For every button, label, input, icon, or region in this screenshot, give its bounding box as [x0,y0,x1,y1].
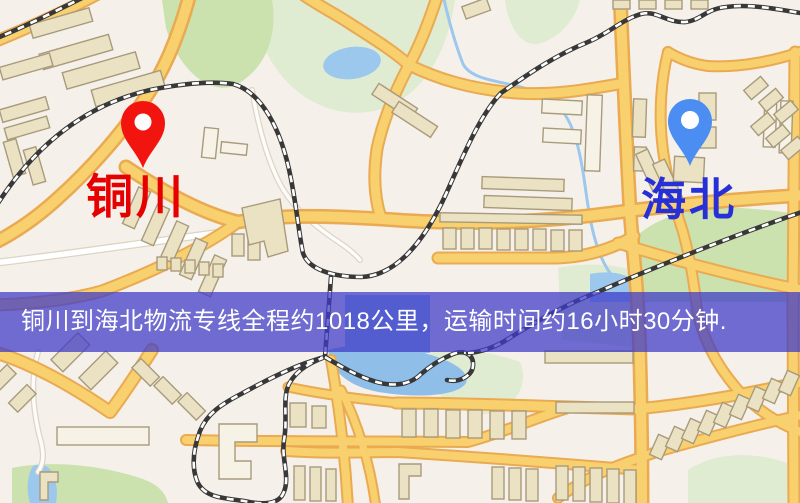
route-info-banner: 铜川到海北物流专线全程约1018公里，运输时间约16小时30分钟. [0,292,800,352]
destination-pin-icon[interactable] [666,98,714,168]
destination-city-label: 海北 [630,176,748,223]
origin-pin-icon[interactable] [119,100,167,170]
route-info-text: 铜川到海北物流专线全程约1018公里，运输时间约16小时30分钟. [0,292,800,352]
map-viewport[interactable]: 铜川到海北物流专线全程约1018公里，运输时间约16小时30分钟. 铜川 海北 [0,0,800,503]
map-canvas[interactable] [0,0,800,503]
origin-city-label: 铜川 [76,172,196,221]
